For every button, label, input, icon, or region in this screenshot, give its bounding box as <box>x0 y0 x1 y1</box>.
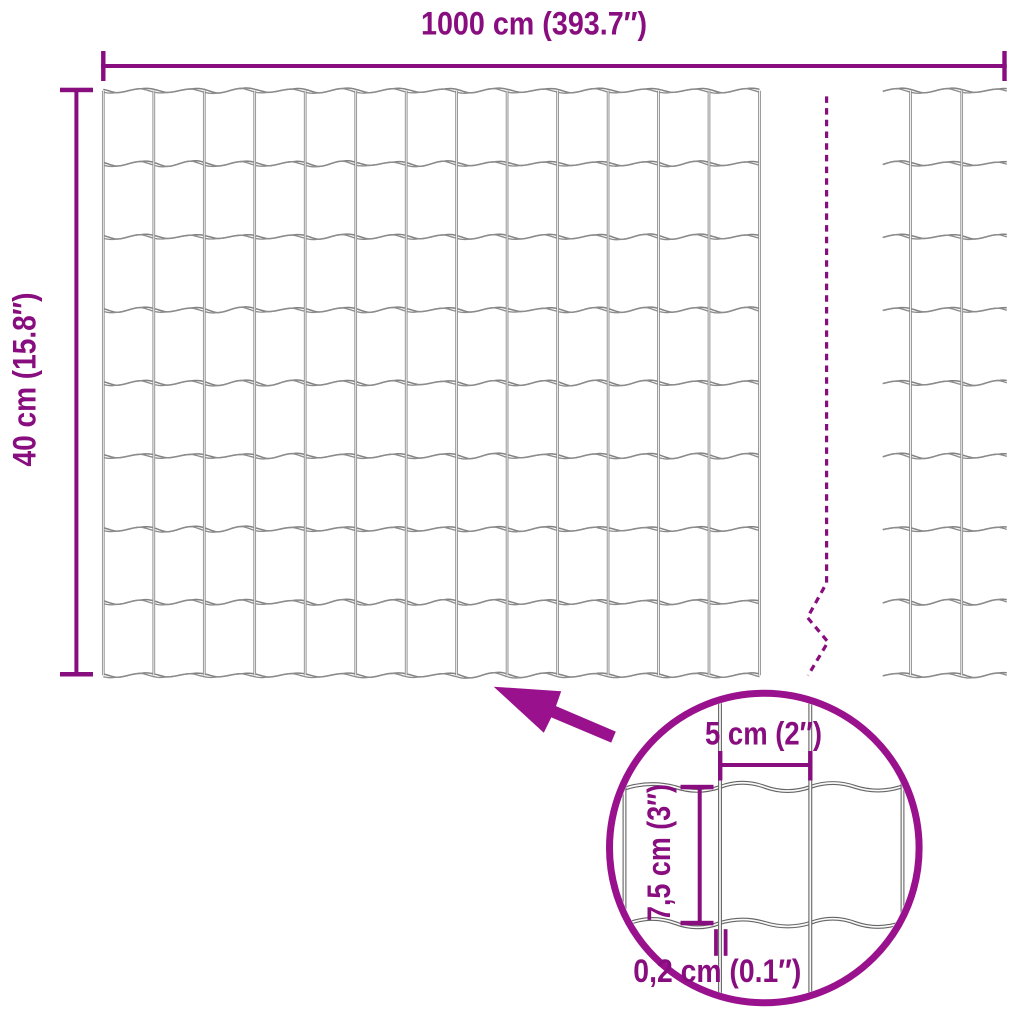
svg-text:7,5 cm (3″): 7,5 cm (3″) <box>641 784 677 921</box>
svg-text:1000 cm (393.7″): 1000 cm (393.7″) <box>421 6 647 42</box>
svg-text:40 cm (15.8″): 40 cm (15.8″) <box>7 293 43 467</box>
svg-text:0,2 cm (0.1″): 0,2 cm (0.1″) <box>633 953 801 989</box>
svg-text:5 cm (2″): 5 cm (2″) <box>705 716 822 752</box>
